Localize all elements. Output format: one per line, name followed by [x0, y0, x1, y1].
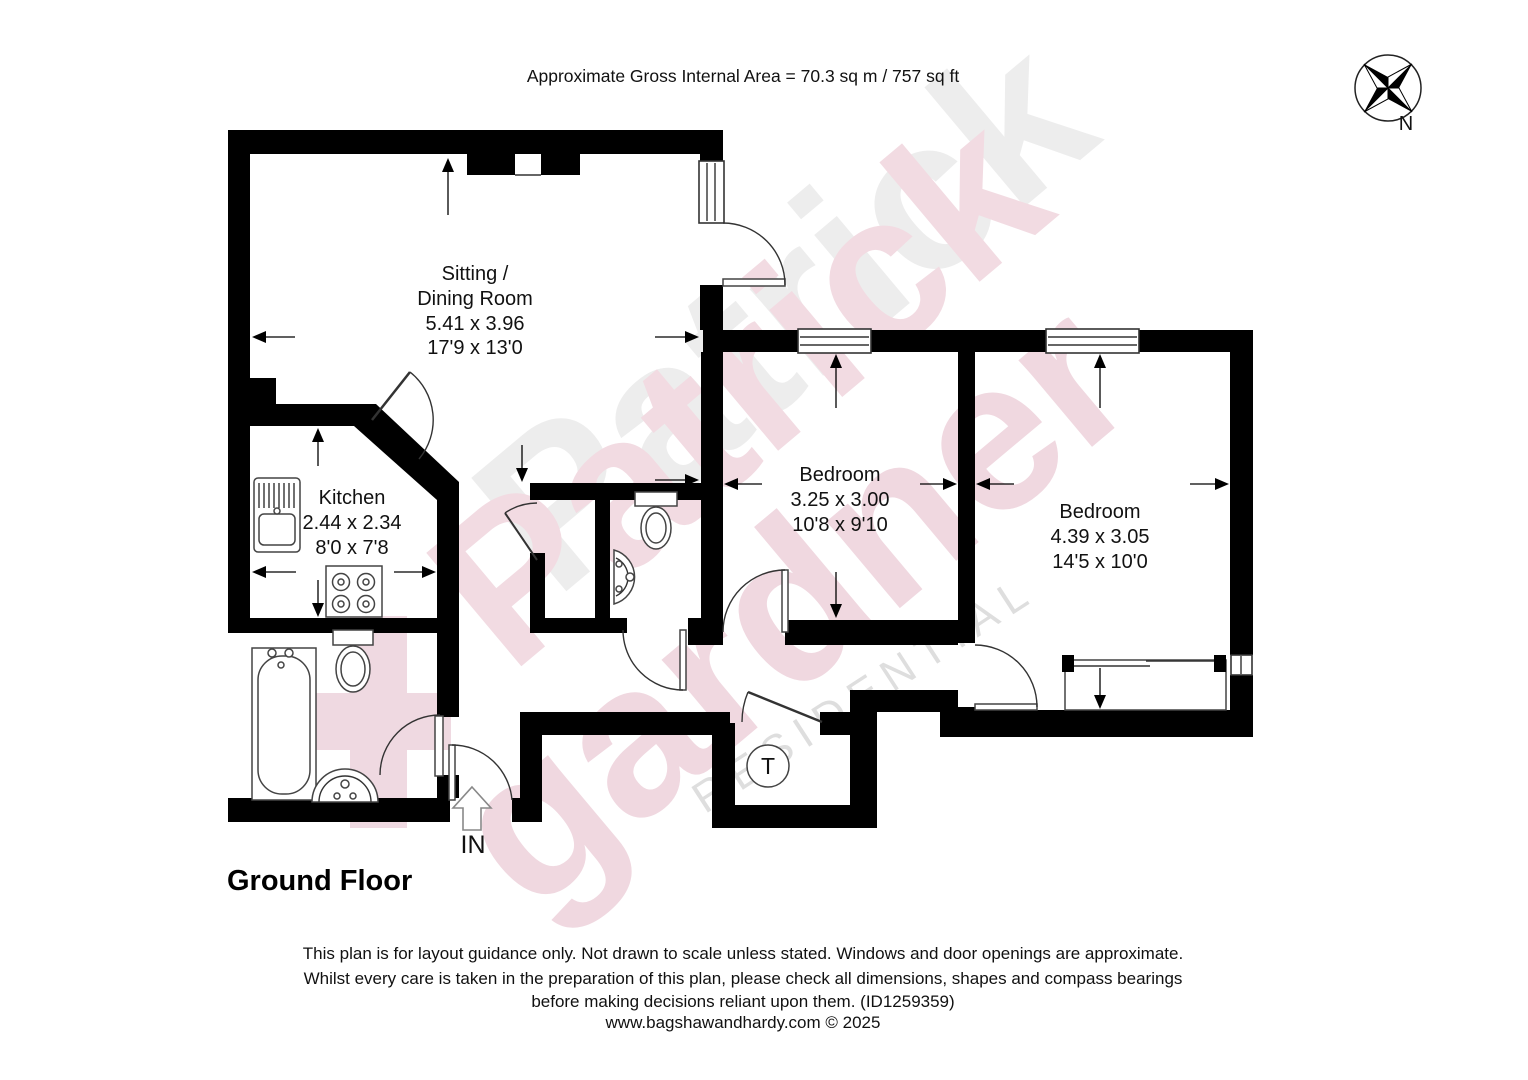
bedroom1-size-metric: 3.25 x 3.00	[791, 489, 890, 511]
kitchen-label: Kitchen 2.44 x 2.34 8'0 x 7'8	[303, 487, 402, 559]
credit-line: www.bagshawandhardy.com © 2025	[605, 1013, 881, 1032]
gross-internal-area-text: Approximate Gross Internal Area = 70.3 s…	[527, 66, 960, 86]
bathtub	[252, 648, 316, 800]
sitting-room-size-metric: 5.41 x 3.96	[426, 313, 525, 335]
kitchen-sink	[254, 478, 300, 552]
kitchen-name: Kitchen	[319, 487, 386, 509]
kitchen-size-metric: 2.44 x 2.34	[303, 512, 402, 534]
disclaimer-line3: before making decisions reliant upon the…	[531, 992, 954, 1011]
bedroom1-name: Bedroom	[799, 464, 880, 486]
tank-label: T	[761, 753, 775, 779]
bedroom2-side-window	[1231, 655, 1252, 675]
kitchen-hob	[326, 566, 382, 617]
bedroom2-label: Bedroom 4.39 x 3.05 14'5 x 10'0	[1051, 501, 1150, 573]
bedroom1-label: Bedroom 3.25 x 3.00 10'8 x 9'10	[791, 464, 890, 536]
kitchen-size-imperial: 8'0 x 7'8	[315, 537, 388, 559]
footer-disclaimer: This plan is for layout guidance only. N…	[303, 944, 1183, 1032]
entrance-in-label: IN	[461, 831, 486, 859]
sitting-room-size-imperial: 17'9 x 13'0	[427, 337, 523, 359]
sitting-dining-room-label: Sitting / Dining Room 5.41 x 3.96 17'9 x…	[417, 263, 533, 359]
sitting-room-name-line2: Dining Room	[417, 288, 533, 310]
floorplan-page: Patrick Patrick gardner RESIDENTIAL	[0, 0, 1528, 1080]
tank-symbol: T	[747, 745, 789, 787]
disclaimer-line1: This plan is for layout guidance only. N…	[303, 944, 1183, 963]
floor-title: Ground Floor	[227, 865, 412, 897]
bedroom2-name: Bedroom	[1059, 501, 1140, 523]
disclaimer-line2: Whilst every care is taken in the prepar…	[304, 969, 1183, 988]
bedroom2-window	[1046, 329, 1139, 353]
bedroom2-door	[975, 645, 1037, 710]
bedroom2-size-metric: 4.39 x 3.05	[1051, 526, 1150, 548]
bedroom2-size-imperial: 14'5 x 10'0	[1052, 551, 1148, 573]
bedroom1-size-imperial: 10'8 x 9'10	[792, 514, 888, 536]
compass-icon: N	[1355, 55, 1421, 135]
sitting-room-window	[699, 161, 724, 223]
compass-north-label: N	[1399, 113, 1413, 135]
floor-plan-canvas: Patrick Patrick gardner RESIDENTIAL	[0, 0, 1528, 1080]
bedroom2-wardrobe	[1062, 655, 1226, 710]
bedroom1-window	[798, 329, 871, 353]
bathroom-toilet	[333, 630, 373, 692]
sitting-room-name-line1: Sitting /	[442, 263, 509, 285]
